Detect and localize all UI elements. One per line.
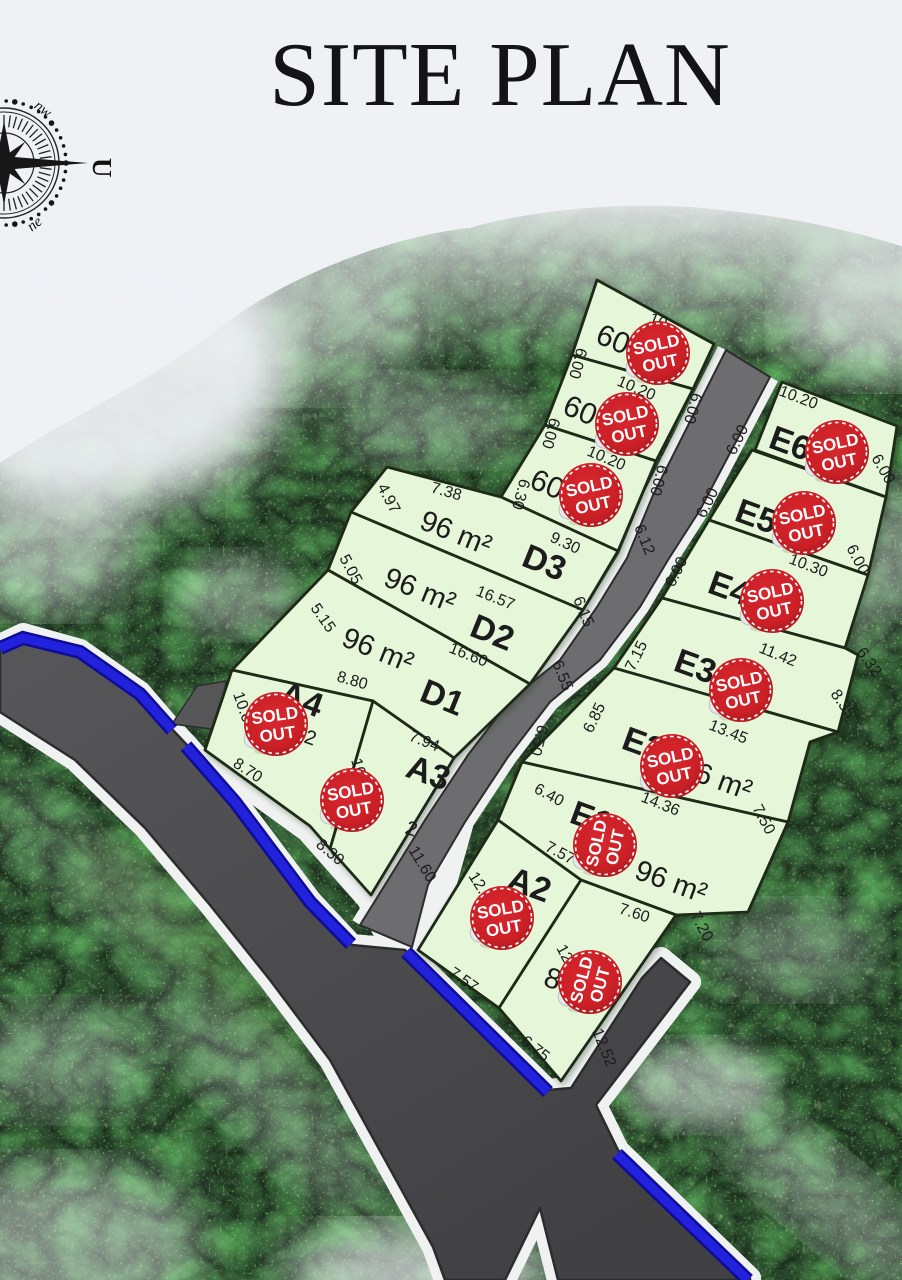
svg-text:SITE PLAN: SITE PLAN (269, 24, 730, 125)
svg-text:U: U (87, 158, 117, 178)
